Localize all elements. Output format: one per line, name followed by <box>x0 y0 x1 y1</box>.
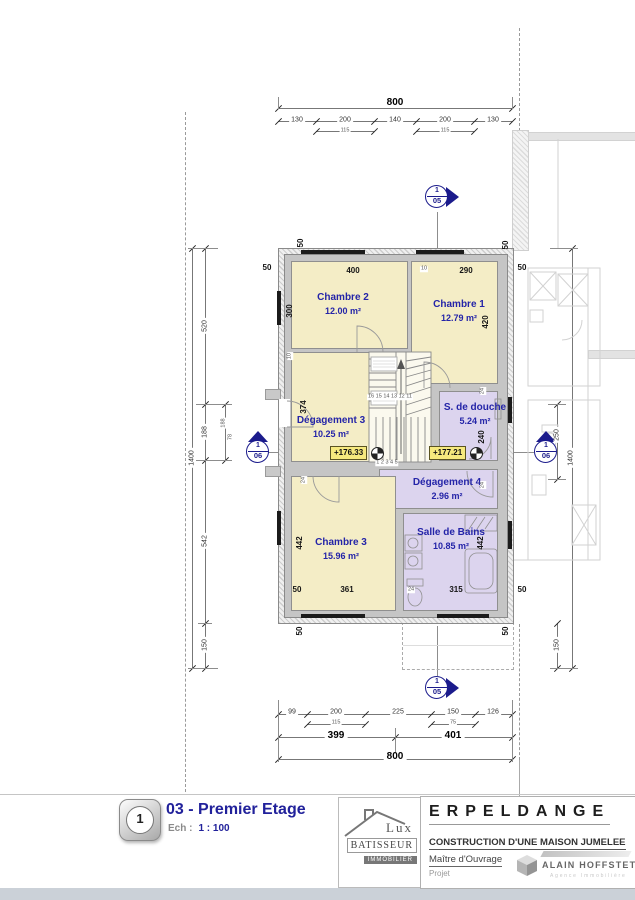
terrace-outline <box>402 622 514 670</box>
dimension-label: 78 <box>228 433 234 441</box>
dimension-label: 290 <box>459 267 472 275</box>
dimension-label: 442 <box>477 536 485 549</box>
dimension-label: 24 <box>301 476 307 484</box>
dimension-label: 150 <box>202 637 209 653</box>
dimension-label: 130 <box>289 117 305 124</box>
scale-note: Ech :1 : 100 <box>168 823 230 834</box>
room-label-degagement-4: Dégagement 42.96 m² <box>413 477 481 501</box>
extension-line <box>196 460 232 461</box>
dimension-label: 800 <box>384 752 407 762</box>
dimension-label: 16 15 14 13 12 11 <box>367 394 413 400</box>
room-label-salle-de-bains: Salle de Bains10.85 m² <box>417 527 485 551</box>
dimension-label: 50 <box>502 241 510 250</box>
extension-line <box>437 212 438 248</box>
dimension-label: 420 <box>482 315 490 328</box>
extension-line <box>188 668 218 669</box>
dimension-label: 315 <box>449 586 462 594</box>
neighbor-unit-ghost <box>512 125 635 585</box>
terrace-line <box>403 645 513 646</box>
dimension-label: 200 <box>328 709 344 716</box>
level-marker: +176.33 <box>330 446 367 460</box>
room-area: 10.25 m² <box>297 429 365 439</box>
dimension-label: 520 <box>202 318 209 334</box>
room-area: 12.00 m² <box>317 306 369 316</box>
builder-logo-line2: BATISSEUR <box>347 838 417 853</box>
dimension-label: 300 <box>286 304 294 317</box>
extension-line <box>278 97 279 109</box>
room-name: Chambre 2 <box>317 292 369 303</box>
agency-name: ALAIN HOFFSTETTER <box>542 860 635 870</box>
extension-line <box>512 97 513 109</box>
dimension-label: 50 <box>293 586 302 594</box>
dimension-label: 150 <box>554 637 561 653</box>
room-name: Chambre 1 <box>433 299 485 310</box>
dimension-label: 126 <box>485 709 501 716</box>
dimension-label: 401 <box>442 731 465 741</box>
level-symbol-icon <box>371 447 384 460</box>
dimension-label: 50 <box>297 239 305 248</box>
section-marker-05-top: 1 05 <box>425 185 449 209</box>
dimension-label: 50 <box>518 264 527 272</box>
room-label-chambre-1: Chambre 112.79 m² <box>433 299 485 323</box>
dimension-label: 150 <box>445 709 461 716</box>
room-area: 5.24 m² <box>444 416 506 426</box>
builder-logo-line1: Lux <box>386 820 413 836</box>
dimension-label: 188 <box>221 417 227 428</box>
boundary-line-right-bottom <box>519 624 520 760</box>
project-label: Projet <box>429 869 450 878</box>
dimension-label: 115 <box>440 128 451 134</box>
swoosh-shape <box>540 851 631 857</box>
room-name: S. de douche <box>444 402 506 413</box>
builder-logo-line3: IMMOBILIER <box>364 856 417 864</box>
page-title: 03 - Premier Etage <box>166 801 306 819</box>
dimension-label: 1400 <box>189 448 196 468</box>
floor-plan-sheet: Chambre 212.00 m²Chambre 112.79 m²Dégage… <box>0 0 635 900</box>
dimension-label: 240 <box>478 430 486 443</box>
dimension-chain-line <box>278 108 512 109</box>
dimension-label: 50 <box>263 264 272 272</box>
dimension-label: 24 <box>480 481 486 489</box>
dimension-label: 50 <box>502 627 510 636</box>
room-label-s-de-douche: S. de douche5.24 m² <box>444 402 506 426</box>
section-marker-05-bottom: 1 05 <box>425 676 449 700</box>
dimension-label: 200 <box>337 117 353 124</box>
boundary-leader <box>519 760 520 796</box>
dimension-label: 115 <box>331 720 342 726</box>
dimension-label: 1 2 3 4 5 <box>375 460 398 466</box>
dimension-label: 542 <box>202 533 209 549</box>
owner-label: Maître d'Ouvrage <box>429 854 502 867</box>
agency-subtitle: Agence Immobilière <box>550 873 627 879</box>
dimension-label: 24 <box>407 587 415 593</box>
extension-line <box>278 700 279 762</box>
room-name: Dégagement 3 <box>297 415 365 426</box>
dimension-label: 75 <box>449 720 457 726</box>
dimension-label: 442 <box>296 536 304 549</box>
level-symbol-icon <box>470 447 483 460</box>
extension-line <box>188 248 218 249</box>
dimension-label: 115 <box>340 128 351 134</box>
project-info-block: ERPELDANGE CONSTRUCTION D'UNE MAISON JUM… <box>420 796 635 889</box>
sheet-number: 1 <box>126 806 154 834</box>
room-area: 10.85 m² <box>417 541 485 551</box>
room-name: Salle de Bains <box>417 527 485 538</box>
agency-logo: ALAIN HOFFSTETTER Agence Immobilière <box>516 849 634 885</box>
scale-label: Ech : <box>168 823 192 834</box>
footer-bar <box>0 888 635 900</box>
dimension-label: 1400 <box>568 448 575 468</box>
boundary-line-left <box>185 112 186 792</box>
title-block-divider <box>0 794 635 795</box>
dimension-label: 10 <box>287 352 293 360</box>
dimension-label: 99 <box>286 709 298 716</box>
scale-value: 1 : 100 <box>198 823 229 834</box>
room-area: 12.79 m² <box>433 313 485 323</box>
dimension-label: 50 <box>518 586 527 594</box>
room-name: Chambre 3 <box>315 537 367 548</box>
extension-line <box>512 700 513 762</box>
extension-line <box>198 623 212 624</box>
staircase <box>369 352 431 462</box>
dimension-label: 140 <box>387 117 403 124</box>
dimension-label: 800 <box>384 98 407 108</box>
dimension-label: 10 <box>420 266 428 272</box>
builder-logo: Lux BATISSEUR IMMOBILIER <box>338 797 422 888</box>
sheet-number-badge: 1 <box>119 799 161 841</box>
section-marker-06-left: 1 06 <box>246 440 270 464</box>
project-name: ERPELDANGE <box>429 803 610 825</box>
level-marker: +177.21 <box>429 446 466 460</box>
room-name: Dégagement 4 <box>413 477 481 488</box>
room-label-degagement-3: Dégagement 310.25 m² <box>297 415 365 439</box>
dimension-label: 130 <box>485 117 501 124</box>
room-label-chambre-3: Chambre 315.96 m² <box>315 537 367 561</box>
dimension-label: 50 <box>296 627 304 636</box>
extension-line <box>196 404 232 405</box>
dimension-label: 361 <box>340 586 353 594</box>
cube-icon <box>516 853 538 877</box>
dimension-label: 225 <box>390 709 406 716</box>
room-area: 2.96 m² <box>413 491 481 501</box>
room-area: 15.96 m² <box>315 551 367 561</box>
dimension-label: 188 <box>202 424 209 440</box>
extension-line <box>550 668 578 669</box>
section-marker-06-right: 1 06 <box>534 440 558 464</box>
dimension-chain-line <box>225 404 226 460</box>
dimension-label: 24 <box>480 387 486 395</box>
dimension-label: 374 <box>300 400 308 413</box>
room-label-chambre-2: Chambre 212.00 m² <box>317 292 369 316</box>
dimension-label: 200 <box>437 117 453 124</box>
dimension-label: 399 <box>325 731 348 741</box>
dimension-label: 400 <box>346 267 359 275</box>
dimension-label: 250 <box>554 427 561 443</box>
